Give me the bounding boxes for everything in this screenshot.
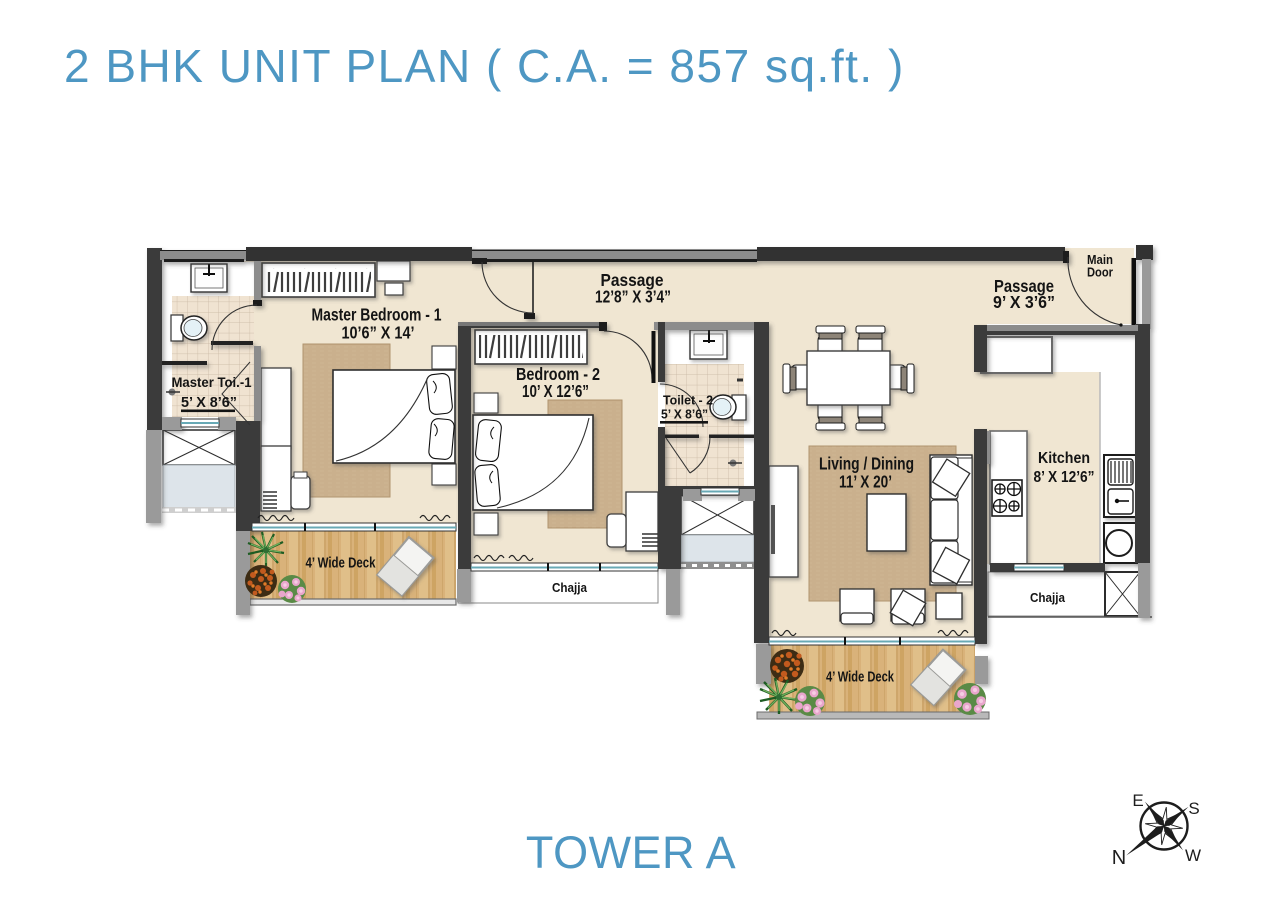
svg-text:11’ X 20’: 11’ X 20’ [839,472,892,492]
svg-text:2 BHK UNIT PLAN ( C.A. = 857 s: 2 BHK UNIT PLAN ( C.A. = 857 sq.ft. ) [64,40,905,92]
svg-text:4’ Wide Deck: 4’ Wide Deck [826,669,894,686]
svg-text:S: S [1188,799,1199,818]
svg-text:N: N [1112,847,1126,869]
svg-text:Door: Door [1087,265,1113,280]
svg-text:Master Toi.-1: Master Toi.-1 [172,375,252,390]
svg-text:E: E [1132,791,1143,810]
svg-text:5’ X 8’6”: 5’ X 8’6” [181,395,237,411]
svg-text:9’ X 3’6”: 9’ X 3’6” [993,292,1055,312]
svg-text:Kitchen: Kitchen [1038,450,1090,467]
svg-text:10’6” X 14’: 10’6” X 14’ [342,323,415,343]
svg-text:8’ X 12’6”: 8’ X 12’6” [1034,469,1095,486]
svg-text:4’ Wide Deck: 4’ Wide Deck [306,555,377,572]
svg-text:10’ X 12’6”: 10’ X 12’6” [522,381,589,401]
svg-text:Master Bedroom - 1: Master Bedroom - 1 [312,305,442,325]
svg-text:Living / Dining: Living / Dining [819,454,914,474]
svg-text:TOWER A: TOWER A [526,827,736,878]
svg-text:12’8” X 3’4”: 12’8” X 3’4” [595,287,671,307]
svg-text:W: W [1185,846,1201,865]
svg-text:Chajja: Chajja [552,580,588,595]
svg-text:Chajja: Chajja [1030,590,1066,605]
svg-text:5’ X 8’6”: 5’ X 8’6” [661,408,708,422]
svg-text:Toilet - 2: Toilet - 2 [663,394,713,408]
